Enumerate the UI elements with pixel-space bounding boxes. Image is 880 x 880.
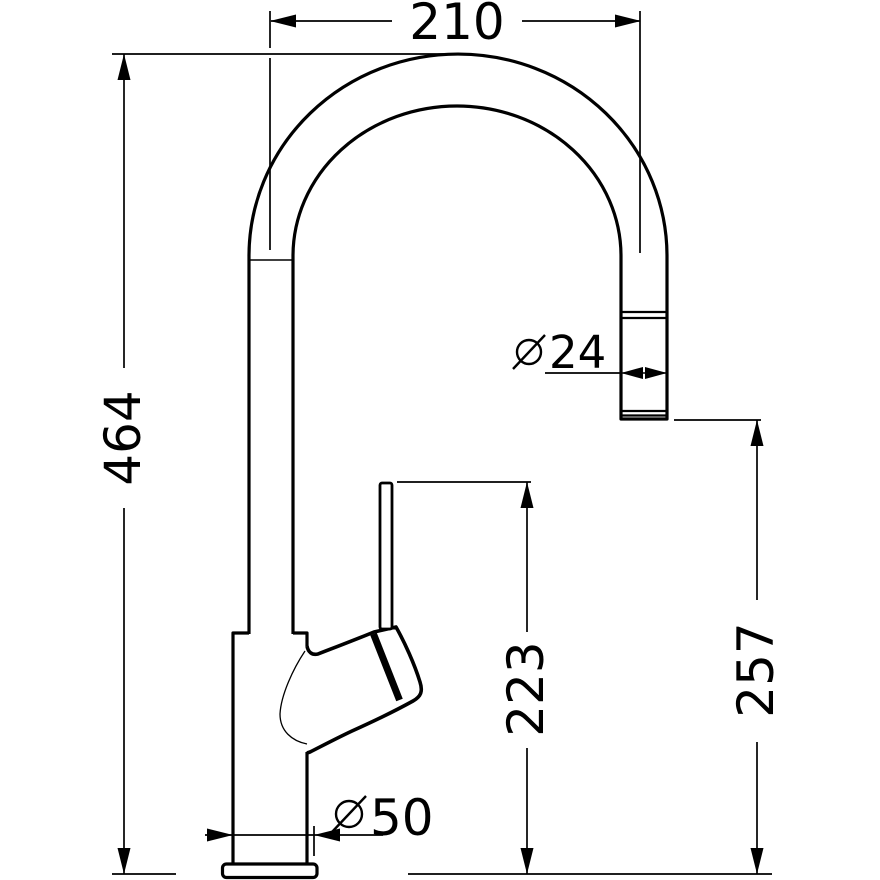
diameter-symbol-icon	[513, 335, 545, 369]
dim-label-base-diameter: 50	[370, 789, 434, 847]
dim-outlet-height: 257	[674, 420, 785, 874]
dim-label-outlet-height: 257	[727, 622, 785, 717]
dim-label-spout-reach: 210	[409, 0, 504, 51]
arrow-up-icon	[751, 420, 764, 446]
arrow-right-icon	[615, 15, 641, 28]
dim-label-spout-diameter: 24	[549, 326, 606, 379]
dimensions: 210 464 24 223	[94, 0, 785, 874]
arrow-down-icon	[521, 848, 534, 874]
arrow-up-icon	[521, 482, 534, 508]
arrow-left-icon	[270, 15, 296, 28]
diameter-symbol-icon	[332, 796, 366, 832]
arrow-up-icon	[118, 54, 131, 80]
faucet	[223, 54, 668, 877]
arrow-right-icon	[207, 829, 233, 842]
handle-lever-rod	[380, 483, 392, 629]
dim-label-overall-height: 464	[94, 390, 152, 485]
arrow-down-icon	[118, 848, 131, 874]
arrow-down-icon	[751, 848, 764, 874]
handle-cap	[307, 627, 421, 753]
faucet-body-fill	[233, 633, 307, 866]
dim-label-handle-height: 223	[497, 641, 555, 736]
base-flange	[223, 864, 318, 878]
arrow-left-icon	[314, 829, 340, 842]
faucet-dimension-drawing: 210 464 24 223	[0, 0, 880, 880]
drawing-canvas: 210 464 24 223	[0, 0, 880, 880]
